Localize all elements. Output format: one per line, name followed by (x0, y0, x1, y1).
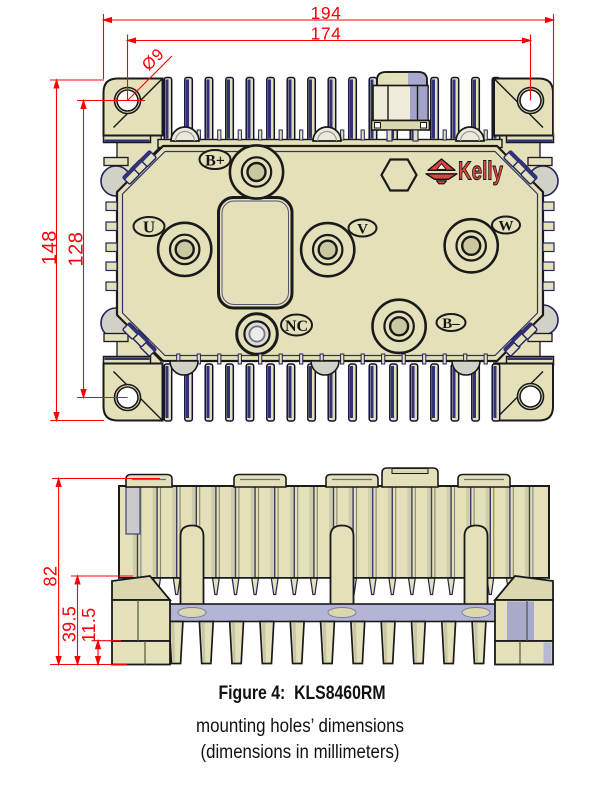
svg-text:194: 194 (311, 3, 342, 23)
svg-text:Kelly: Kelly (458, 156, 503, 186)
svg-text:(dimensions in millimeters): (dimensions in millimeters) (201, 742, 400, 763)
svg-text:mounting holes’ dimensions: mounting holes’ dimensions (196, 716, 404, 737)
svg-text:148: 148 (39, 230, 61, 265)
svg-text:W: W (499, 218, 514, 234)
svg-text:V: V (357, 221, 368, 237)
svg-text:NC: NC (285, 318, 308, 335)
svg-text:39.5: 39.5 (60, 606, 80, 642)
svg-text:11.5: 11.5 (79, 608, 99, 643)
svg-text:128: 128 (66, 232, 88, 267)
svg-text:Figure 4: KLS8460RM: Figure 4: KLS8460RM (219, 682, 386, 704)
svg-text:U: U (143, 218, 155, 237)
svg-text:82: 82 (41, 565, 61, 586)
svg-text:Ø9: Ø9 (139, 45, 169, 75)
svg-text:B+: B+ (205, 152, 225, 169)
svg-text:174: 174 (311, 24, 342, 44)
svg-text:B–: B– (442, 316, 460, 332)
